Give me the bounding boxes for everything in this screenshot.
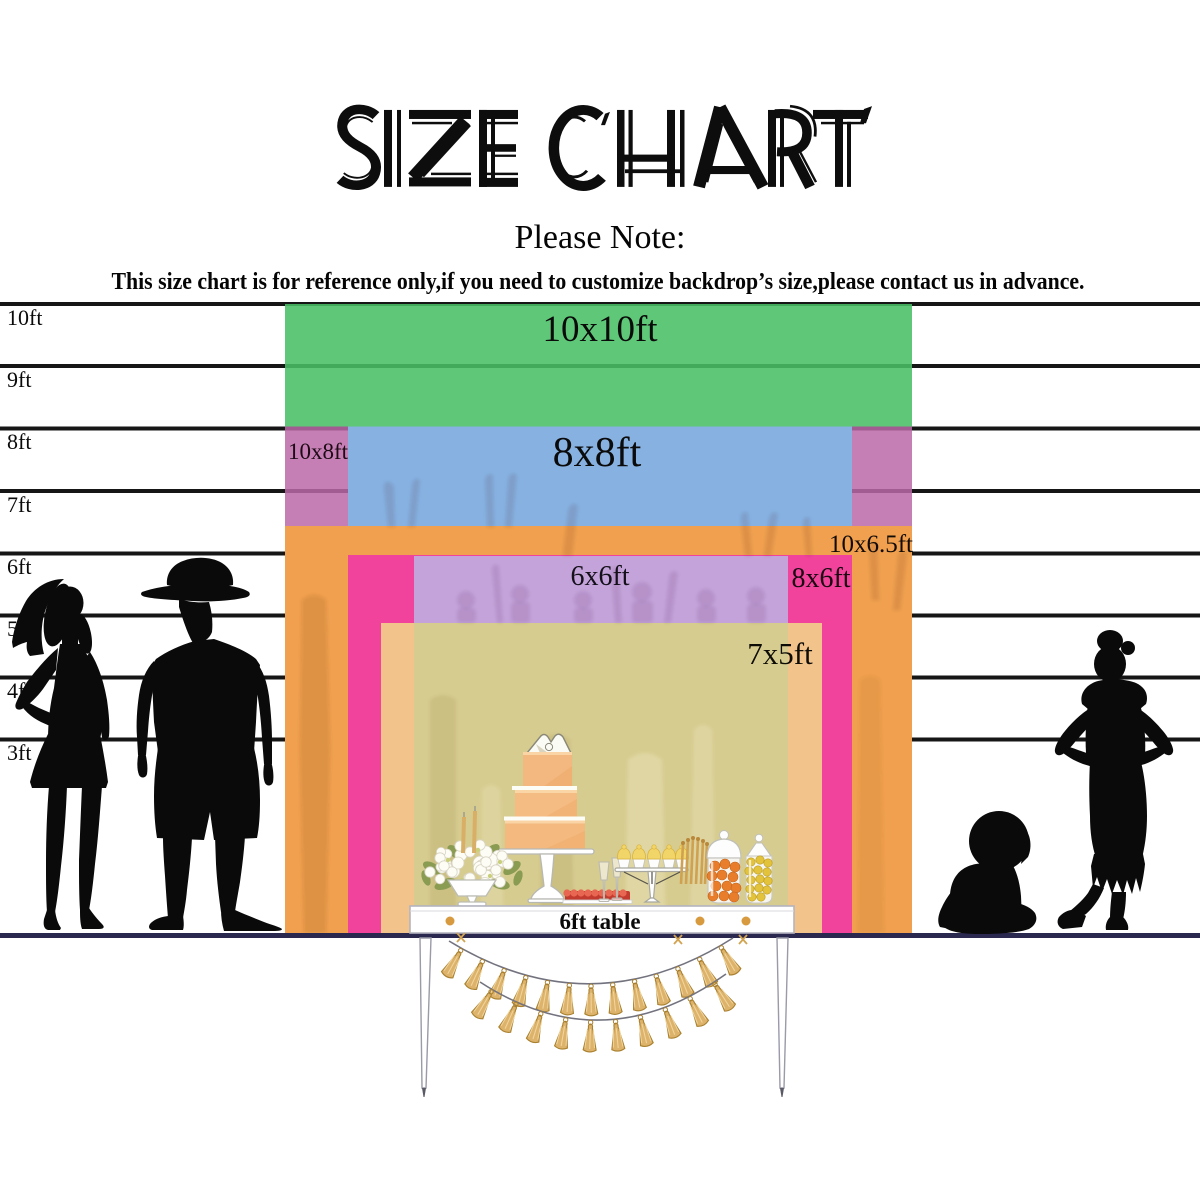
svg-text:This size chart is for referen: This size chart is for reference only,if… [112,268,1085,295]
svg-text:10x10ft: 10x10ft [542,309,658,350]
svg-text:10x6.5ft: 10x6.5ft [829,531,913,558]
svg-text:8x8ft: 8x8ft [553,430,642,476]
svg-text:3ft: 3ft [7,740,31,765]
svg-text:Please Note:: Please Note: [515,219,686,256]
svg-text:6ft table: 6ft table [559,909,640,934]
svg-text:8ft: 8ft [7,429,31,454]
svg-text:7ft: 7ft [7,492,31,517]
svg-text:10ft: 10ft [7,305,42,330]
svg-text:7x5ft: 7x5ft [747,636,813,671]
svg-text:6ft: 6ft [7,554,31,579]
svg-text:9ft: 9ft [7,367,31,392]
svg-text:10x8ft: 10x8ft [288,439,349,464]
svg-text:8x6ft: 8x6ft [791,563,850,594]
svg-text:6x6ft: 6x6ft [570,561,629,592]
